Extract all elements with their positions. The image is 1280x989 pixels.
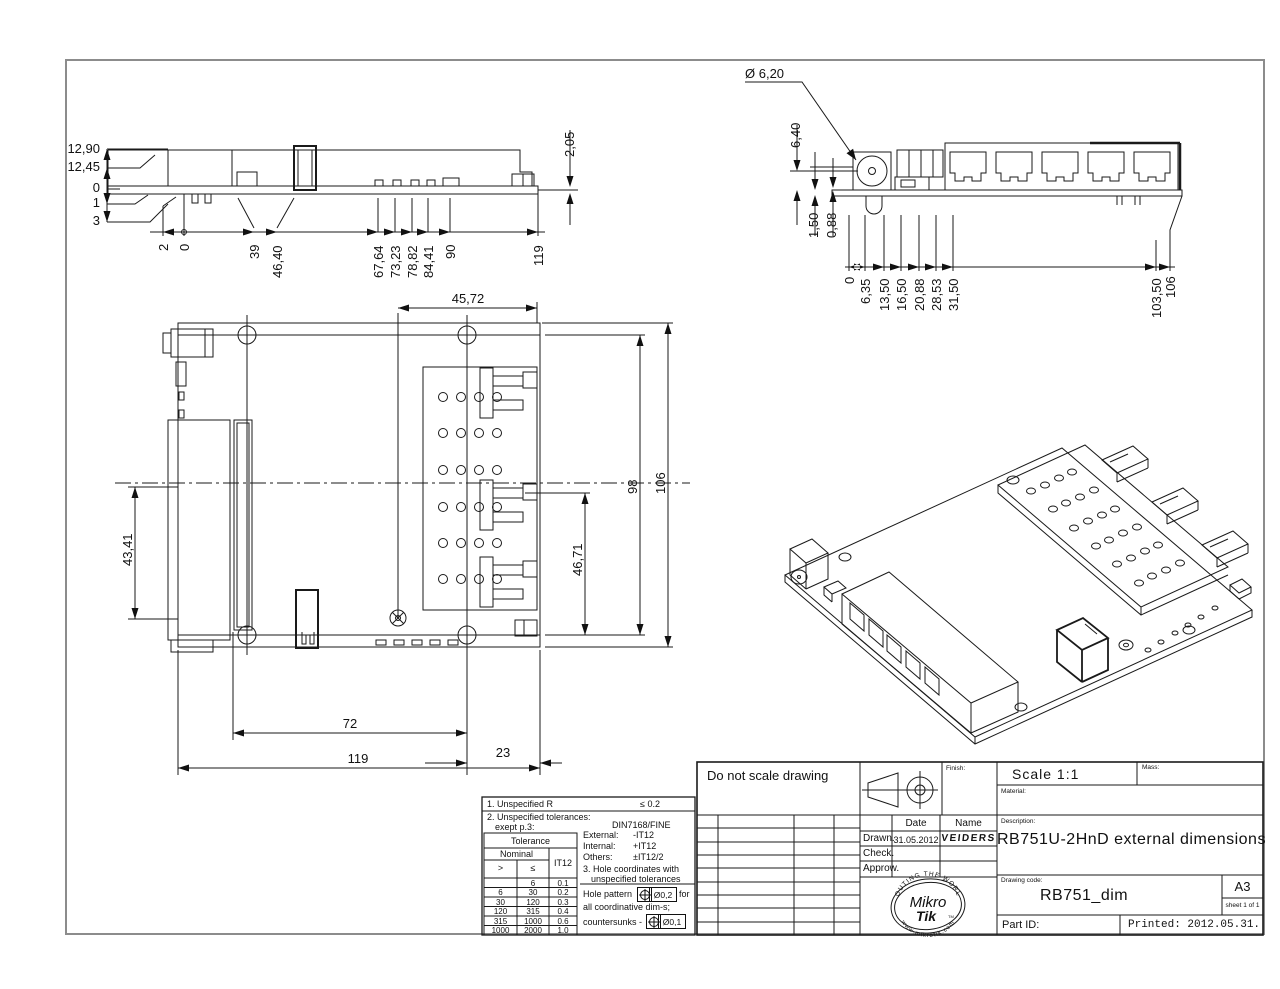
note-internal-value: +IT12 [633, 841, 656, 851]
note-unspecified-r-value: ≤ 0.2 [640, 799, 660, 809]
description-label: Description: [1001, 818, 1035, 825]
name-header: Name [940, 818, 997, 829]
isometric-clips [1102, 446, 1248, 567]
dim-label: 106 [653, 472, 668, 494]
printed-date: Printed: 2012.05.31. [1128, 919, 1260, 931]
note-hole-coords-2: unspecified tolerances [591, 874, 681, 884]
dim-label: 3 [93, 213, 100, 228]
logo-text-tik: Tik [916, 908, 937, 924]
note-external-label: External: [583, 830, 619, 840]
note-except-p3: exept p.3: [495, 822, 535, 832]
tol-cell: 2000 [517, 926, 549, 935]
position-tolerance-value-box: Ø0,2 [649, 887, 677, 902]
dim-label: 103,50 [1149, 278, 1164, 318]
dim-label: 98 [625, 480, 640, 494]
tol-cell: 315 [517, 907, 549, 916]
tol-cell: 120 [517, 898, 549, 907]
dim-label: 12,45 [67, 159, 100, 174]
dim-label: 90 [443, 245, 458, 259]
dim-label: 20,88 [912, 278, 927, 311]
mikrotik-logo: ROUTING THE WORLD www.mikrotik.com Mikro… [888, 871, 967, 939]
tolerance-table-nominal: Nominal [484, 849, 549, 859]
dim-label: 2 [156, 244, 171, 251]
dim-label: 28,53 [929, 278, 944, 311]
dim-label: 13,50 [877, 278, 892, 311]
isometric-shield-holes [1027, 469, 1185, 586]
dim-label: 1 [93, 195, 100, 210]
tolerance-col-gt: > [484, 863, 517, 873]
drawing-code-label: Drawing code: [1001, 877, 1043, 884]
plan-view [115, 302, 690, 775]
dimension-labels: 12,90 12,45 0 1 3 2 0 39 46,40 67,64 73,… [67, 66, 1178, 766]
tol-cell: 315 [484, 917, 517, 926]
dim-label: 45,72 [452, 291, 485, 306]
note-for: for [679, 889, 690, 899]
note-unspecified-r: 1. Unspecified R [487, 799, 553, 809]
tol-cell: 30 [517, 888, 549, 897]
position-tolerance-icon [649, 917, 659, 927]
dim-label: 78,82 [405, 245, 420, 278]
tol-cell: 1000 [517, 917, 549, 926]
front-elevation-view [745, 82, 1182, 271]
mass-label: Mass: [1142, 764, 1159, 771]
scale-value: Scale 1:1 [1012, 766, 1079, 782]
side-elevation-view [104, 130, 579, 236]
part-id-label: Part ID: [1002, 919, 1039, 931]
do-not-scale-note: Do not scale drawing [707, 768, 828, 783]
shield-holes [439, 393, 502, 584]
note-others-value: ±IT12/2 [633, 852, 663, 862]
note-external-value: -IT12 [633, 830, 654, 840]
note-others-label: Others: [583, 852, 613, 862]
position-tolerance-icon [640, 890, 650, 900]
approve-label: Approw. [863, 863, 899, 874]
dim-label: Ø 6,20 [745, 66, 784, 81]
dim-label: 0 [842, 277, 857, 284]
paper-size: A3 [1222, 879, 1263, 894]
logo-tm: TM [948, 914, 954, 919]
sheet-number: sheet 1 of 1 [1222, 902, 1263, 909]
dim-label: 16,50 [894, 278, 909, 311]
dim-label: 106 [1163, 276, 1178, 298]
isometric-leds [1145, 606, 1218, 652]
tol-cell: 0.2 [549, 888, 577, 897]
dim-label: 0 [177, 244, 192, 251]
dim-label: 23 [496, 745, 510, 760]
countersunk-tolerance-value-box: Ø0,1 [658, 914, 686, 929]
dim-label: 46,40 [270, 245, 285, 278]
dim-label: 39 [247, 245, 262, 259]
isometric-view [785, 445, 1252, 744]
tol-cell: 1000 [484, 926, 517, 935]
note-hole-pattern: Hole pattern [583, 889, 632, 899]
drawn-name-signature: VEIDERS [939, 833, 997, 844]
projection-symbol-icon [862, 771, 938, 809]
tolerance-table-title: Tolerance [484, 836, 577, 846]
material-label: Material: [1001, 788, 1026, 795]
description-value: RB751U-2HnD external dimensions [997, 831, 1263, 849]
tol-cell: 0.3 [549, 898, 577, 907]
dim-label: 46,71 [570, 543, 585, 576]
dim-label: 73,23 [388, 245, 403, 278]
dim-label: 0,88 [824, 213, 839, 238]
note-all-coordinative: all coordinative dim-s; [583, 902, 670, 912]
note-din-standard: DIN7168/FINE [612, 820, 671, 830]
dim-label: 119 [531, 245, 546, 266]
dim-label: 119 [348, 751, 369, 766]
date-header: Date [892, 818, 940, 829]
check-label: Check. [863, 848, 894, 859]
dim-label: 1,50 [806, 213, 821, 238]
drawn-label: Drawn. [863, 833, 895, 844]
tol-cell: 0.1 [549, 879, 577, 888]
tol-cell: 6 [484, 888, 517, 897]
finish-label: Finish: [946, 765, 965, 772]
note-unspecified-tolerances: 2. Unspecified tolerances: [487, 812, 591, 822]
dim-label: 6,35 [858, 279, 873, 304]
tol-cell: 6 [517, 879, 549, 888]
engineering-drawing-page: 12,90 12,45 0 1 3 2 0 39 46,40 67,64 73,… [0, 0, 1280, 989]
title-block-lines: ROUTING THE WORLD www.mikrotik.com Mikro… [697, 762, 1263, 939]
tolerance-table-it12: IT12 [549, 858, 577, 868]
dim-label: 31,50 [946, 278, 961, 311]
shield-clips [480, 368, 537, 607]
dim-label: 67,64 [371, 245, 386, 278]
dim-label: 0 [93, 180, 100, 195]
tolerance-col-le: ≤ [517, 863, 549, 873]
note-internal-label: Internal: [583, 841, 616, 851]
tol-cell: 0.6 [549, 917, 577, 926]
tol-cell: 120 [484, 907, 517, 916]
note-countersunks: countersunks - [583, 917, 642, 927]
tol-cell: 0.4 [549, 907, 577, 916]
drawing-code-value: RB751_dim [1040, 887, 1128, 905]
drawn-date: 31.05.2012 [892, 835, 940, 845]
dim-label: 43,41 [120, 533, 135, 566]
dim-label: 12,90 [67, 141, 100, 156]
tol-cell: 1.0 [549, 926, 577, 935]
dim-label: 6,40 [788, 123, 803, 148]
dim-label: 2,05 [562, 132, 577, 157]
dim-label: 84,41 [421, 245, 436, 278]
tol-cell: 30 [484, 898, 517, 907]
dim-label: 72 [343, 716, 357, 731]
note-hole-coords-1: 3. Hole coordinates with [583, 864, 679, 874]
